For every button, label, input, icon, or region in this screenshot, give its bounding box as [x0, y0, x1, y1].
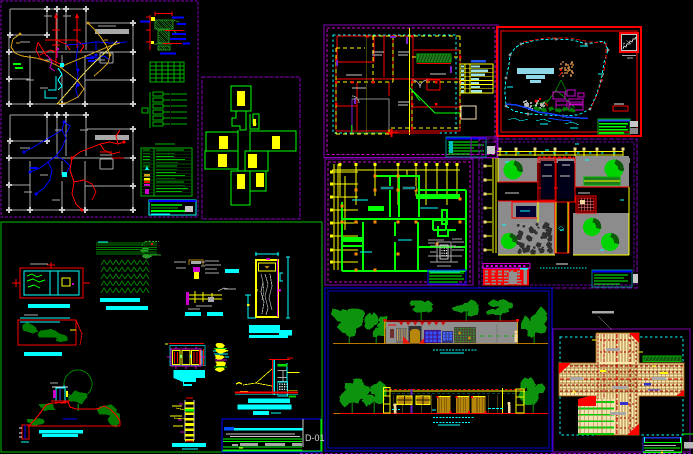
svg-text:D-01: D-01: [305, 433, 325, 443]
